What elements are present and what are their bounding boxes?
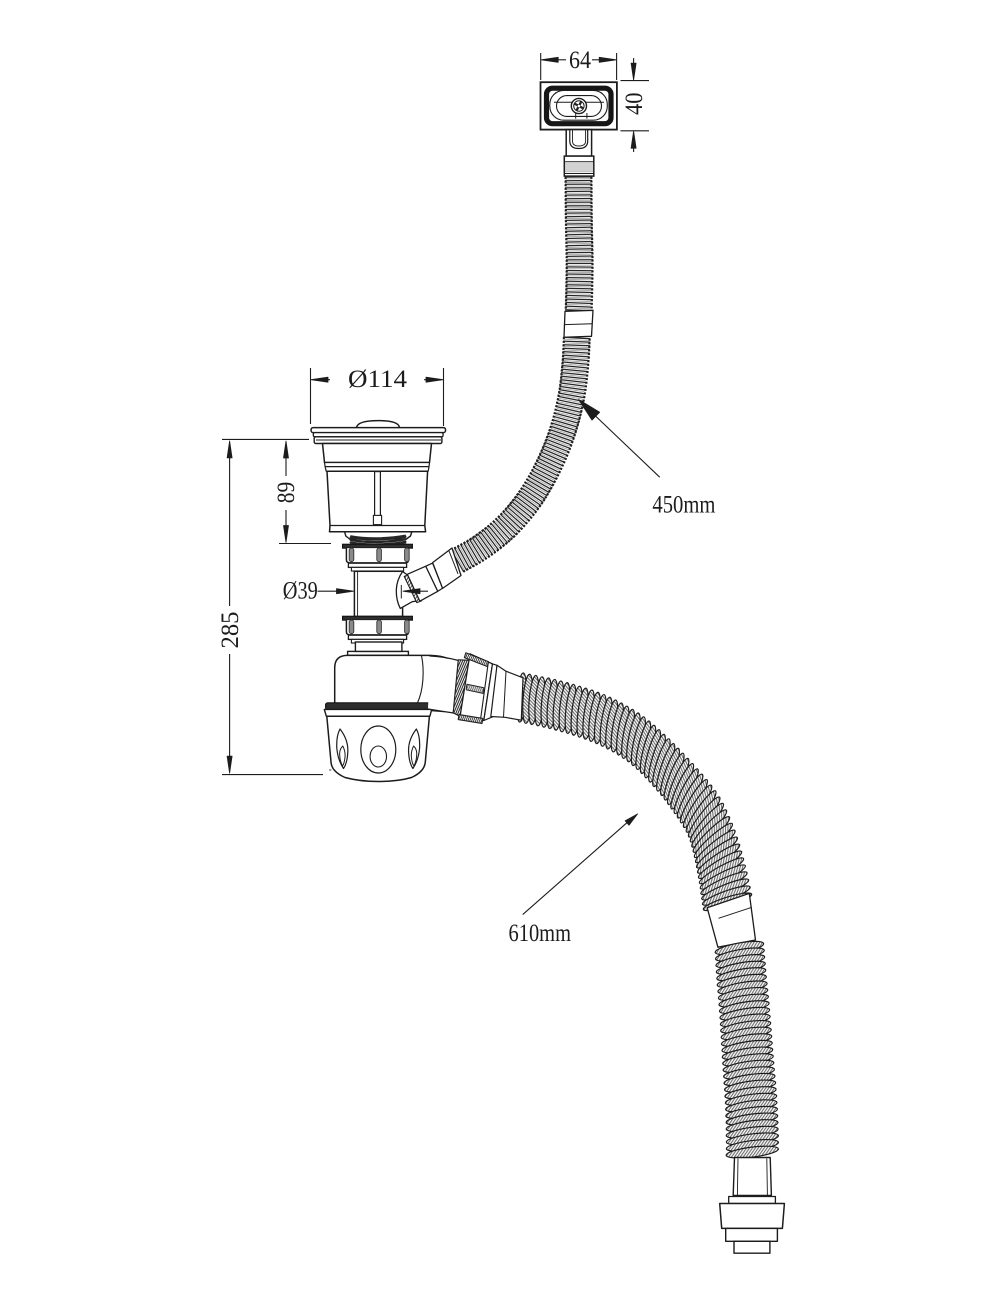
svg-text:64: 64 — [569, 47, 591, 74]
svg-text:89: 89 — [273, 482, 300, 504]
svg-text:Ø39: Ø39 — [283, 578, 318, 605]
svg-text:285: 285 — [217, 612, 244, 649]
svg-text:40: 40 — [621, 93, 648, 116]
svg-text:450mm: 450mm — [652, 492, 715, 519]
svg-text:610mm: 610mm — [509, 920, 572, 947]
svg-text:Ø114: Ø114 — [348, 366, 408, 393]
